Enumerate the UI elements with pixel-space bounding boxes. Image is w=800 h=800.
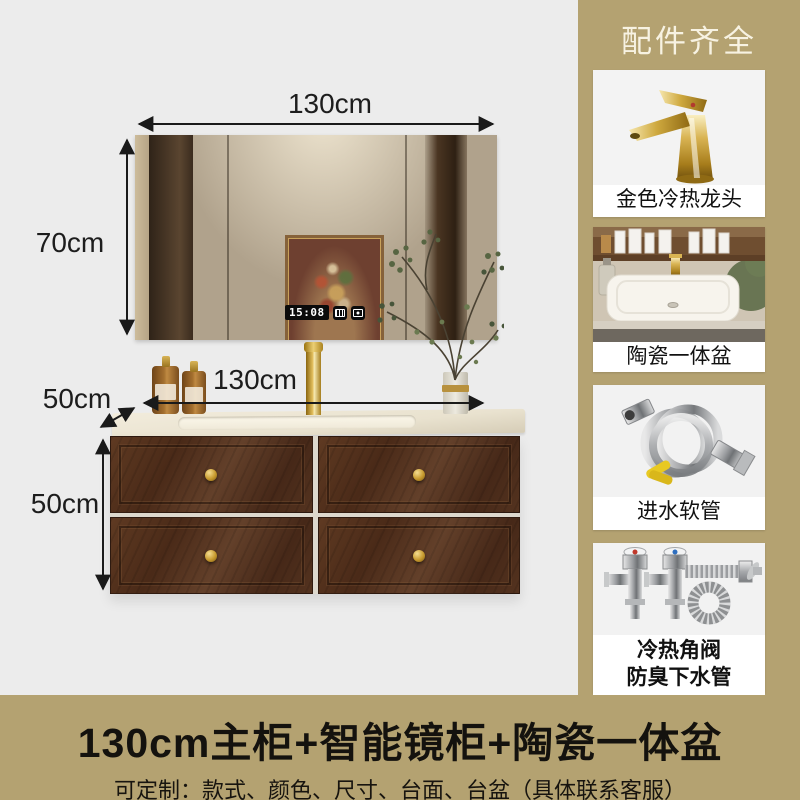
accessory-label: 冷热角阀 防臭下水管 bbox=[593, 635, 765, 695]
accessory-label-line1: 冷热角阀 bbox=[593, 637, 765, 664]
accessory-card-hose: 进水软管 bbox=[593, 385, 765, 530]
drawer-knob bbox=[205, 550, 217, 562]
clock-time: 15:08 bbox=[285, 305, 329, 320]
drawer bbox=[110, 517, 313, 594]
drawer bbox=[110, 436, 313, 513]
mirror-seam bbox=[227, 135, 229, 340]
drawer-knob bbox=[413, 550, 425, 562]
product-title: 130cm主柜+智能镜柜+陶瓷一体盆 bbox=[0, 709, 800, 769]
product-poster: 15:08 bbox=[0, 0, 800, 800]
decorative-plant bbox=[372, 212, 504, 418]
customization-note: 可定制：款式、颜色、尺寸、台面、台盆（具体联系客服） bbox=[0, 773, 800, 800]
accessory-label: 金色冷热龙头 bbox=[593, 185, 765, 215]
title-banner: 130cm主柜+智能镜柜+陶瓷一体盆 可定制：款式、颜色、尺寸、台面、台盆（具体… bbox=[0, 695, 800, 800]
counter-depth-label: 50cm bbox=[40, 383, 114, 415]
cabinet-left-half bbox=[110, 436, 313, 594]
gold-faucet-image bbox=[593, 70, 765, 185]
accessory-card-basin: 陶瓷一体盆 bbox=[593, 227, 765, 372]
accessory-label: 进水软管 bbox=[593, 497, 765, 527]
drawer bbox=[318, 517, 521, 594]
drawer-knob bbox=[413, 469, 425, 481]
cabinet-height-label: 50cm bbox=[28, 488, 102, 520]
sidebar-header: 配件齐全 bbox=[578, 16, 800, 61]
accessory-card-faucet: 金色冷热龙头 bbox=[593, 70, 765, 217]
drawer-knob bbox=[205, 469, 217, 481]
ceramic-basin-image bbox=[593, 227, 765, 342]
angle-valves-drain-pipe-image bbox=[593, 543, 765, 635]
accessories-sidebar: 配件齐全 bbox=[578, 0, 800, 695]
smart-clock: 15:08 bbox=[285, 305, 365, 320]
accessory-label-line2: 防臭下水管 bbox=[593, 664, 765, 691]
light-icon bbox=[351, 306, 365, 320]
accessory-card-valves: 冷热角阀 防臭下水管 bbox=[593, 543, 765, 693]
drawer bbox=[318, 436, 521, 513]
vanity-cabinet bbox=[110, 436, 520, 594]
defog-icon bbox=[333, 306, 347, 320]
mirror-edge-strip bbox=[135, 135, 149, 340]
reflected-painting bbox=[285, 235, 384, 340]
cabinet-right-half bbox=[318, 436, 521, 594]
accessory-label: 陶瓷一体盆 bbox=[593, 342, 765, 372]
mirror-width-label: 130cm bbox=[278, 88, 382, 120]
mirror-height-label: 70cm bbox=[33, 227, 107, 259]
reflected-door-panel bbox=[149, 135, 193, 340]
product-scene: 15:08 bbox=[0, 0, 578, 695]
counter-width-label: 130cm bbox=[200, 364, 310, 396]
soap-bottle bbox=[152, 366, 179, 414]
inlet-hose-image bbox=[593, 385, 765, 497]
